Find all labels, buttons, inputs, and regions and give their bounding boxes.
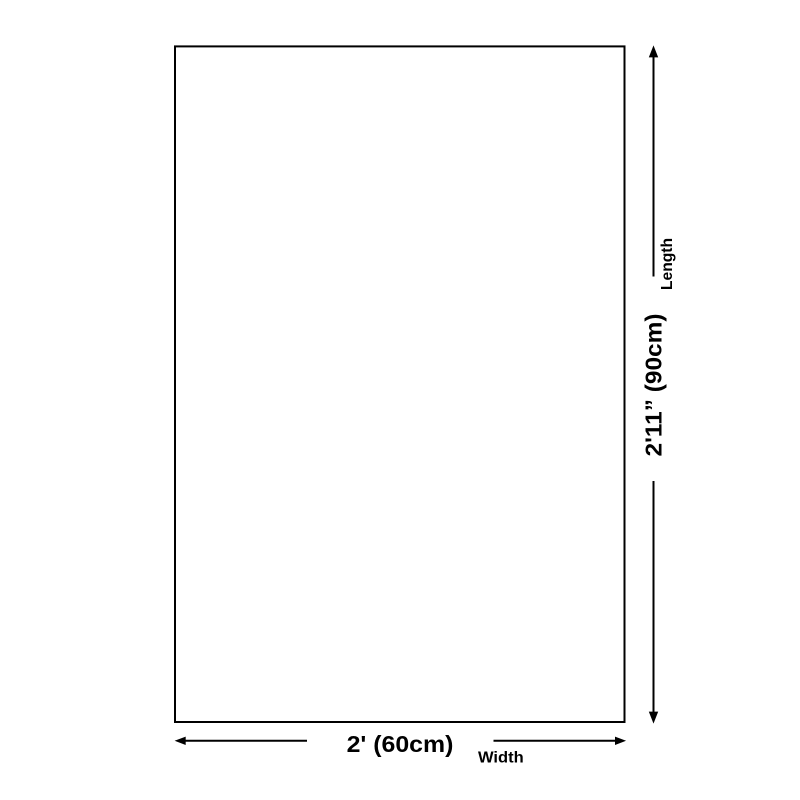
svg-text:Length: Length xyxy=(659,238,676,290)
svg-text:2' (60cm): 2' (60cm) xyxy=(347,731,454,757)
svg-text:2'11” (90cm): 2'11” (90cm) xyxy=(641,314,667,457)
svg-text:Width: Width xyxy=(478,750,524,767)
